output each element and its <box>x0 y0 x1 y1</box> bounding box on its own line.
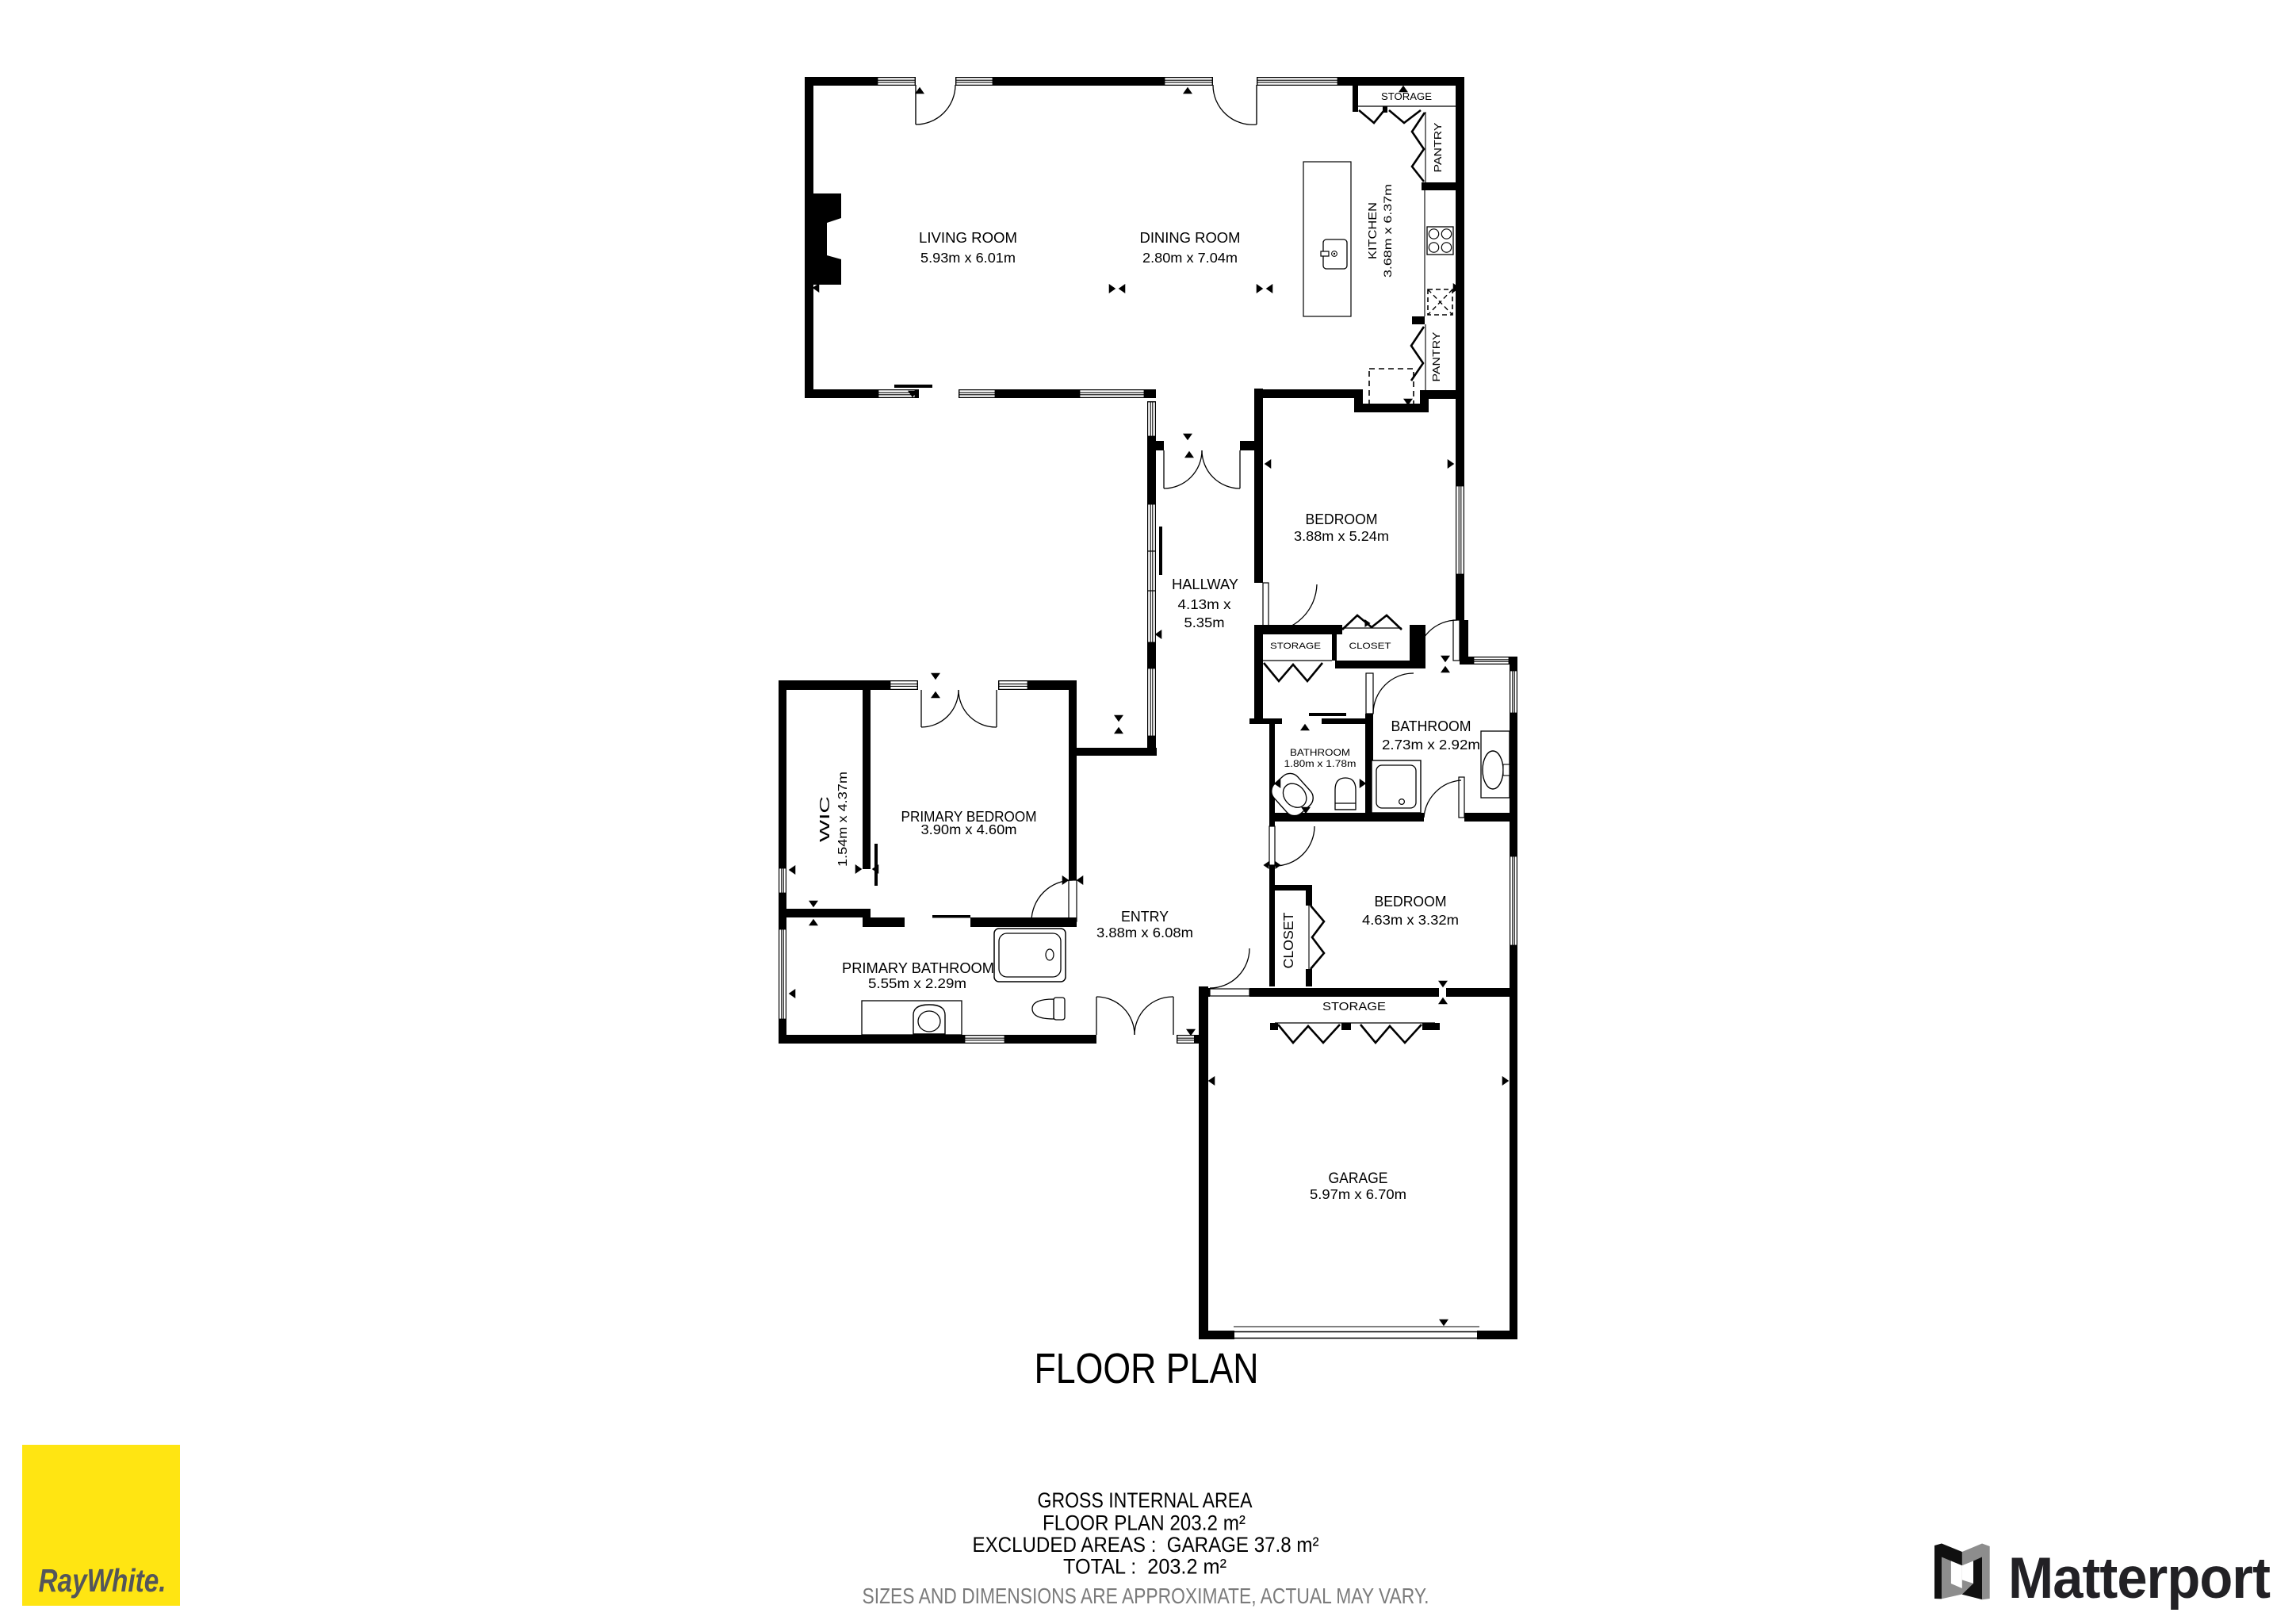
svg-text:3.90m x 4.60m: 3.90m x 4.60m <box>921 822 1017 837</box>
svg-text:WIC: WIC <box>817 796 832 842</box>
svg-text:BATHROOM: BATHROOM <box>1391 718 1471 734</box>
svg-text:STORAGE: STORAGE <box>1381 91 1432 102</box>
svg-text:HALLWAY: HALLWAY <box>1172 576 1238 592</box>
svg-text:PRIMARY BATHROOM: PRIMARY BATHROOM <box>842 960 994 976</box>
svg-text:GARAGE: GARAGE <box>1329 1170 1388 1187</box>
svg-text:PANTRY: PANTRY <box>1432 122 1444 172</box>
svg-text:BEDROOM: BEDROOM <box>1375 894 1447 910</box>
svg-text:4.13m x: 4.13m x <box>1178 596 1231 612</box>
svg-text:LIVING ROOM: LIVING ROOM <box>919 230 1017 246</box>
svg-text:BEDROOM: BEDROOM <box>1306 511 1378 527</box>
svg-text:Matterport: Matterport <box>2008 1546 2271 1611</box>
svg-text:BATHROOM: BATHROOM <box>1290 747 1350 758</box>
svg-text:FLOOR PLAN 203.2 m²: FLOOR PLAN 203.2 m² <box>1043 1511 1246 1535</box>
svg-text:3.88m x 6.08m: 3.88m x 6.08m <box>1096 925 1193 940</box>
svg-text:CLOSET: CLOSET <box>1349 642 1391 651</box>
svg-text:1.80m x 1.78m: 1.80m x 1.78m <box>1284 760 1357 769</box>
svg-text:FLOOR PLAN: FLOOR PLAN <box>1035 1346 1259 1392</box>
svg-text:TOTAL : 203.2 m²: TOTAL : 203.2 m² <box>1063 1555 1226 1579</box>
svg-text:SIZES AND DIMENSIONS ARE APPRO: SIZES AND DIMENSIONS ARE APPROXIMATE, AC… <box>863 1584 1429 1608</box>
svg-text:5.97m x 6.70m: 5.97m x 6.70m <box>1310 1186 1406 1202</box>
svg-text:GROSS INTERNAL AREA: GROSS INTERNAL AREA <box>1038 1488 1253 1512</box>
svg-text:EXCLUDED AREAS : GARAGE 37.8: EXCLUDED AREAS : GARAGE 37.8 m² <box>973 1533 1319 1557</box>
svg-text:5.35m: 5.35m <box>1184 615 1225 630</box>
svg-text:4.63m x 3.32m: 4.63m x 3.32m <box>1362 912 1459 928</box>
svg-text:PANTRY: PANTRY <box>1430 331 1442 381</box>
svg-text:3.68m x 6.37m: 3.68m x 6.37m <box>1381 184 1394 278</box>
svg-text:2.80m x 7.04m: 2.80m x 7.04m <box>1142 250 1238 266</box>
svg-text:KITCHEN: KITCHEN <box>1367 202 1380 259</box>
svg-text:STORAGE: STORAGE <box>1322 1000 1386 1013</box>
svg-text:CLOSET: CLOSET <box>1280 912 1296 968</box>
svg-text:DINING ROOM: DINING ROOM <box>1140 230 1241 246</box>
svg-text:RayWhite.: RayWhite. <box>39 1562 166 1599</box>
svg-text:2.73m x 2.92m: 2.73m x 2.92m <box>1382 737 1480 753</box>
svg-text:ENTRY: ENTRY <box>1121 909 1169 925</box>
svg-text:5.55m x 2.29m: 5.55m x 2.29m <box>868 975 966 991</box>
svg-text:3.88m x 5.24m: 3.88m x 5.24m <box>1294 528 1389 544</box>
svg-text:1.54m x 4.37m: 1.54m x 4.37m <box>836 772 850 867</box>
svg-text:5.93m x 6.01m: 5.93m x 6.01m <box>920 250 1016 266</box>
svg-text:STORAGE: STORAGE <box>1270 642 1321 651</box>
